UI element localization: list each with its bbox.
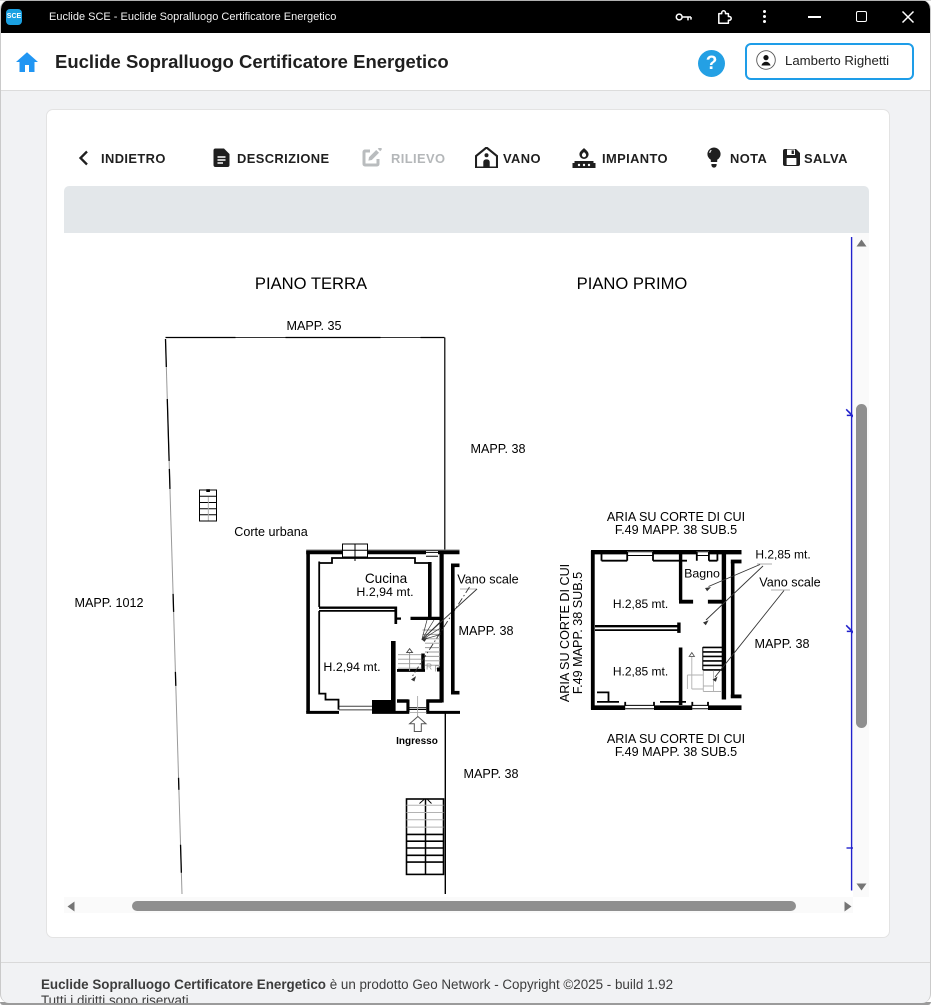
svg-text:F.49 MAPP. 38 SUB.5: F.49 MAPP. 38 SUB.5 — [615, 523, 737, 537]
svg-text:H.2,85 mt.: H.2,85 mt. — [613, 665, 668, 679]
svg-text:ARIA SU CORTE DI CUI: ARIA SU CORTE DI CUI — [558, 564, 572, 702]
svg-text:ARIA SU CORTE DI CUI: ARIA SU CORTE DI CUI — [607, 732, 745, 746]
svg-text:Cucina: Cucina — [365, 571, 408, 586]
svg-text:MAPP. 35: MAPP. 35 — [286, 319, 341, 333]
svg-text:MAPP. 1012: MAPP. 1012 — [74, 596, 143, 610]
svg-text:Ingresso: Ingresso — [396, 736, 438, 747]
svg-text:F.49 MAPP. 38 SUB.5: F.49 MAPP. 38 SUB.5 — [571, 572, 585, 694]
svg-text:Vano scale: Vano scale — [759, 576, 820, 590]
svg-text:H.2,94 mt.: H.2,94 mt. — [323, 660, 380, 674]
svg-text:R: R — [426, 662, 432, 672]
svg-text:PIANO TERRA: PIANO TERRA — [255, 274, 368, 293]
svg-text:Vano scale: Vano scale — [457, 573, 518, 587]
svg-text:F.49 MAPP. 38 SUB.5: F.49 MAPP. 38 SUB.5 — [615, 745, 737, 759]
svg-text:Corte urbana: Corte urbana — [234, 525, 308, 539]
svg-text:ARIA SU CORTE DI CUI: ARIA SU CORTE DI CUI — [607, 510, 745, 524]
svg-text:MAPP. 38: MAPP. 38 — [754, 637, 809, 651]
svg-text:H.2,85 mt.: H.2,85 mt. — [613, 597, 668, 611]
svg-text:MAPP. 38: MAPP. 38 — [470, 442, 525, 456]
svg-text:MAPP. 38: MAPP. 38 — [463, 767, 518, 781]
svg-text:Bagno: Bagno — [684, 567, 720, 581]
svg-text:PIANO PRIMO: PIANO PRIMO — [577, 274, 688, 293]
svg-text:MAPP. 38: MAPP. 38 — [458, 624, 513, 638]
svg-text:H.2,94 mt.: H.2,94 mt. — [356, 585, 413, 599]
svg-text:H.2,85 mt.: H.2,85 mt. — [755, 548, 810, 562]
